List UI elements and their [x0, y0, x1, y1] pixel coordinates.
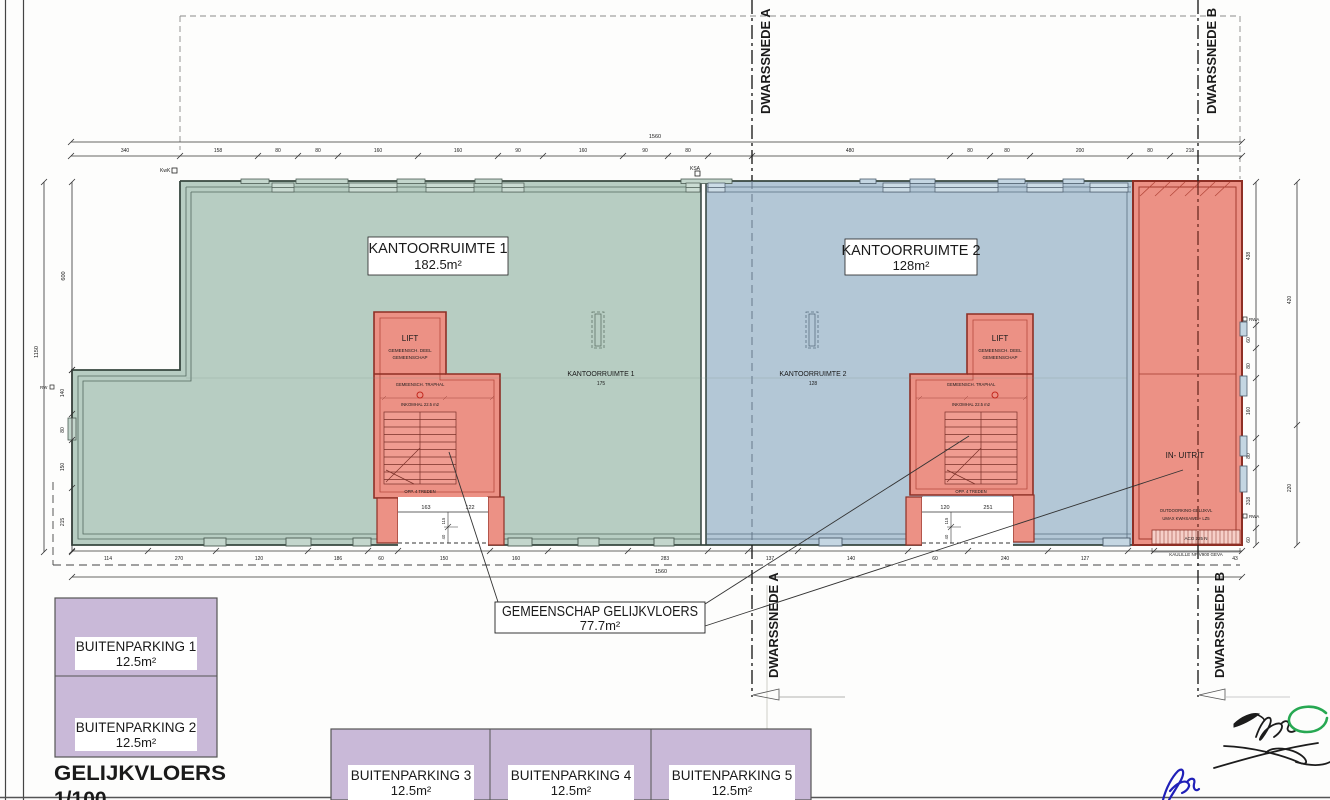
svg-text:340: 340 [121, 148, 130, 154]
svg-text:40: 40 [441, 534, 446, 539]
svg-text:240: 240 [1001, 556, 1010, 562]
svg-text:KANTOORRUIMTE 1: KANTOORRUIMTE 1 [567, 371, 634, 378]
svg-text:1560: 1560 [649, 134, 661, 140]
svg-text:60: 60 [378, 556, 384, 562]
svg-text:GELIJKVLOERS: GELIJKVLOERS [54, 762, 226, 785]
svg-text:160: 160 [454, 148, 463, 154]
svg-text:40: 40 [944, 534, 949, 539]
svg-text:114: 114 [104, 556, 112, 562]
svg-text:12.5m²: 12.5m² [551, 783, 592, 798]
svg-text:77.7m²: 77.7m² [580, 618, 621, 633]
svg-text:160: 160 [579, 148, 588, 154]
svg-text:KAULILLE NF V900 GEVA: KAULILLE NF V900 GEVA [1169, 552, 1222, 557]
svg-text:1560: 1560 [655, 569, 667, 575]
svg-text:BUITENPARKING 3: BUITENPARKING 3 [351, 768, 472, 783]
svg-text:160: 160 [374, 148, 383, 154]
svg-text:80: 80 [1004, 148, 1010, 154]
svg-text:RWA: RWA [1249, 514, 1259, 519]
svg-text:215: 215 [60, 518, 66, 527]
svg-text:186: 186 [334, 556, 343, 562]
svg-text:480: 480 [846, 148, 855, 154]
svg-text:115: 115 [944, 517, 949, 524]
svg-text:DWARSSNEDE B: DWARSSNEDE B [1212, 572, 1227, 678]
svg-text:60: 60 [932, 556, 938, 562]
svg-text:90: 90 [642, 148, 648, 154]
svg-text:160: 160 [1246, 407, 1252, 416]
svg-text:ACO 225 N: ACO 225 N [1184, 536, 1207, 541]
svg-text:BUITENPARKING 2: BUITENPARKING 2 [76, 720, 197, 735]
svg-text:80: 80 [685, 148, 691, 154]
svg-text:DWARSSNEDE A: DWARSSNEDE A [766, 572, 781, 678]
svg-text:OUTDOORKING-GELIJKVL: OUTDOORKING-GELIJKVL [1160, 508, 1213, 513]
svg-text:80: 80 [1147, 148, 1153, 154]
svg-text:12.5m²: 12.5m² [116, 735, 157, 750]
svg-text:LIFT: LIFT [992, 334, 1009, 343]
svg-text:GEMEENSCH. DEEL: GEMEENSCH. DEEL [388, 348, 432, 353]
svg-text:DWARSSNEDE B: DWARSSNEDE B [1204, 8, 1219, 114]
svg-text:1150: 1150 [34, 346, 40, 358]
svg-text:80: 80 [315, 148, 321, 154]
svg-text:150: 150 [440, 556, 449, 562]
svg-text:GEMEENSCH. TRAPHAL: GEMEENSCH. TRAPHAL [947, 382, 996, 387]
svg-text:OPP. 4 TREDEN: OPP. 4 TREDEN [404, 489, 435, 494]
svg-text:80: 80 [60, 427, 66, 433]
svg-text:LIFT: LIFT [402, 334, 419, 343]
svg-text:120: 120 [255, 556, 264, 562]
svg-text:RWA: RWA [1249, 317, 1259, 322]
svg-text:128m²: 128m² [893, 258, 931, 273]
svg-text:158: 158 [214, 148, 223, 154]
svg-text:OPP. 4 TREDEN: OPP. 4 TREDEN [955, 489, 986, 494]
svg-text:INKOMHAL 22.5 m2: INKOMHAL 22.5 m2 [401, 402, 440, 407]
svg-text:12.5m²: 12.5m² [391, 783, 432, 798]
svg-text:128: 128 [809, 381, 818, 387]
svg-text:218: 218 [1186, 148, 1195, 154]
svg-text:420: 420 [1287, 296, 1293, 305]
svg-text:140: 140 [847, 556, 856, 562]
svg-text:150: 150 [60, 463, 66, 472]
svg-text:43: 43 [1232, 556, 1238, 562]
svg-text:220: 220 [1287, 484, 1293, 493]
svg-text:12.5m²: 12.5m² [116, 654, 157, 669]
svg-text:1/100: 1/100 [54, 788, 107, 800]
svg-text:127: 127 [1081, 556, 1090, 562]
svg-text:12.5m²: 12.5m² [712, 783, 753, 798]
svg-text:182.5m²: 182.5m² [414, 257, 462, 272]
svg-text:80: 80 [275, 148, 281, 154]
svg-text:GEMEENSCHAP: GEMEENSCHAP [392, 355, 427, 360]
svg-text:163: 163 [421, 505, 430, 511]
svg-text:60: 60 [1246, 337, 1252, 343]
svg-text:200: 200 [1076, 148, 1085, 154]
svg-text:KANTOORRUIMTE 2: KANTOORRUIMTE 2 [779, 371, 846, 378]
svg-text:283: 283 [661, 556, 670, 562]
svg-text:140: 140 [60, 389, 66, 398]
svg-text:251: 251 [983, 505, 992, 511]
svg-text:DWARSSNEDE A: DWARSSNEDE A [758, 8, 773, 114]
svg-text:BUITENPARKING 1: BUITENPARKING 1 [76, 639, 197, 654]
svg-text:115: 115 [441, 517, 446, 524]
svg-text:438: 438 [1246, 252, 1252, 261]
svg-text:GEMEENSCH. DEEL: GEMEENSCH. DEEL [978, 348, 1022, 353]
svg-text:GEMEENSCH. TRAPHAL: GEMEENSCH. TRAPHAL [396, 382, 445, 387]
svg-text:BUITENPARKING 5: BUITENPARKING 5 [672, 768, 793, 783]
svg-text:120: 120 [940, 505, 949, 511]
svg-text:GEMEENSCHAP: GEMEENSCHAP [982, 355, 1017, 360]
svg-text:160: 160 [512, 556, 521, 562]
svg-text:270: 270 [175, 556, 184, 562]
svg-text:80: 80 [967, 148, 973, 154]
svg-text:60: 60 [1246, 537, 1252, 543]
svg-text:318: 318 [1246, 497, 1252, 506]
svg-text:KANTOORRUIMTE 1: KANTOORRUIMTE 1 [368, 241, 507, 257]
svg-text:INKOMHAL 22.5 m2: INKOMHAL 22.5 m2 [952, 402, 991, 407]
svg-text:KANTOORRUIMTE 2: KANTOORRUIMTE 2 [841, 243, 980, 259]
svg-text:80: 80 [1246, 363, 1252, 369]
svg-text:KwK: KwK [160, 168, 171, 174]
svg-text:600: 600 [61, 271, 67, 280]
svg-text:90: 90 [515, 148, 521, 154]
svg-text:175: 175 [597, 381, 606, 387]
svg-text:BUITENPARKING 4: BUITENPARKING 4 [511, 768, 632, 783]
svg-text:UMAX KWHSAWE + LZ5: UMAX KWHSAWE + LZ5 [1162, 516, 1210, 521]
